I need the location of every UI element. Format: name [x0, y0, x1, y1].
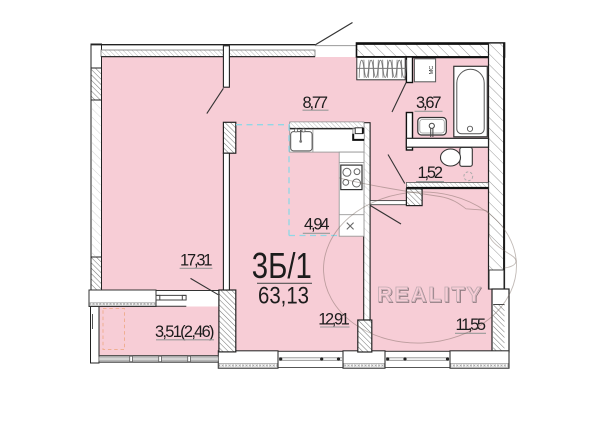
svg-text:3,67: 3,67 — [416, 94, 442, 112]
svg-text:3Б/1: 3Б/1 — [252, 245, 312, 286]
svg-text:REALITY: REALITY — [377, 284, 483, 307]
svg-text:17,31: 17,31 — [180, 251, 213, 269]
svg-text:1,52: 1,52 — [418, 164, 444, 182]
svg-text:4,94: 4,94 — [304, 215, 330, 233]
svg-text:3,51(2,46): 3,51(2,46) — [155, 323, 215, 341]
svg-text:63,13: 63,13 — [258, 283, 309, 310]
svg-text:12,91: 12,91 — [318, 310, 350, 328]
svg-text:МС: МС — [429, 66, 435, 75]
svg-text:8,77: 8,77 — [303, 94, 329, 112]
